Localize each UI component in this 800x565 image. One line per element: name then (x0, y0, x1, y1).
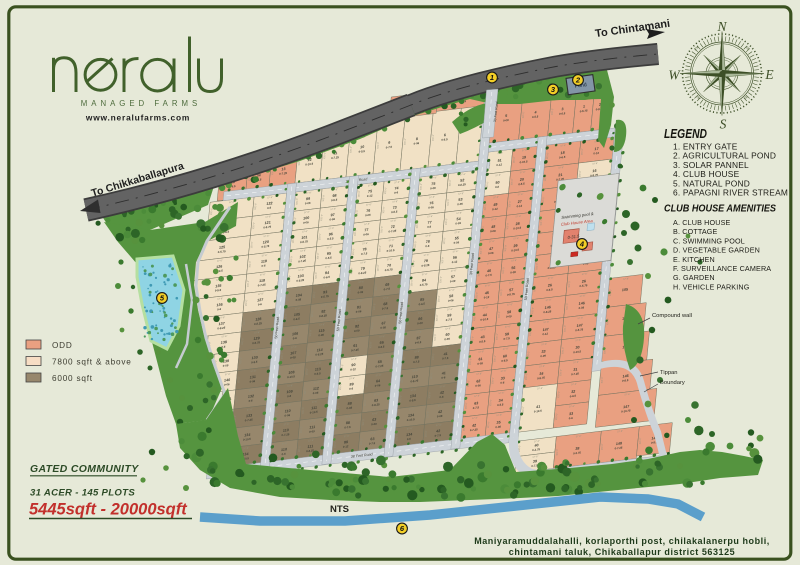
svg-text:0-12: 0-12 (492, 207, 498, 212)
svg-text:0-06: 0-06 (444, 337, 450, 342)
svg-text:S: S (720, 117, 727, 132)
svg-text:0-7.5: 0-7.5 (413, 359, 420, 364)
svg-text:N: N (716, 19, 727, 34)
svg-text:Boundary: Boundary (660, 380, 685, 386)
svg-text:0-06: 0-06 (448, 298, 454, 303)
svg-text:0-06: 0-06 (313, 391, 319, 396)
svg-text:Compound wall: Compound wall (652, 313, 692, 319)
svg-text:2: 2 (575, 76, 581, 85)
svg-text:0-08: 0-08 (510, 270, 516, 275)
svg-text:0-09: 0-09 (506, 314, 512, 319)
svg-text:0-09: 0-09 (357, 290, 363, 295)
svg-text:0-7.5: 0-7.5 (369, 441, 376, 446)
svg-text:0-06: 0-06 (375, 383, 381, 388)
svg-text:0-08: 0-08 (346, 406, 352, 411)
svg-text:LEGEND: LEGEND (664, 127, 707, 141)
svg-text:0-08: 0-08 (490, 229, 496, 234)
svg-text:6. PAPAGNI RIVER STREAM: 6. PAPAGNI RIVER STREAM (673, 188, 788, 198)
svg-text:0-7.5: 0-7.5 (442, 356, 449, 361)
svg-text:0-09: 0-09 (371, 422, 377, 427)
svg-text:0-09: 0-09 (354, 328, 360, 333)
svg-text:0-5.5: 0-5.5 (391, 209, 398, 214)
svg-text:105: 105 (622, 288, 629, 293)
svg-text:1: 1 (490, 73, 494, 82)
svg-text:0-6.5: 0-6.5 (415, 340, 422, 345)
svg-text:0-06: 0-06 (303, 220, 309, 225)
svg-text:0-7.5: 0-7.5 (473, 405, 480, 410)
svg-text:0-12: 0-12 (367, 193, 373, 198)
svg-text:5445sqft - 20000sqft: 5445sqft - 20000sqft (29, 501, 188, 519)
svg-text:G. GARDEN: G. GARDEN (673, 273, 715, 282)
svg-text:0-09: 0-09 (309, 429, 315, 434)
svg-text:0-12: 0-12 (452, 260, 458, 265)
svg-text:0-08: 0-08 (578, 305, 584, 310)
svg-text:0-06: 0-06 (365, 213, 371, 218)
svg-text:0-6.5: 0-6.5 (378, 344, 385, 349)
svg-text:E. KITCHEN: E. KITCHEN (673, 255, 715, 264)
svg-text:0-5.5: 0-5.5 (479, 339, 486, 344)
svg-text:0-06: 0-06 (329, 217, 335, 222)
svg-text:E: E (764, 67, 774, 82)
svg-text:0-06: 0-06 (475, 383, 481, 388)
svg-text:0-08: 0-08 (495, 425, 501, 430)
svg-text:0-7.5: 0-7.5 (382, 306, 389, 311)
svg-text:0-08: 0-08 (437, 414, 443, 419)
svg-text:D. VEGETABLE GARDEN: D. VEGETABLE GARDEN (673, 246, 760, 255)
svg-text:0-06: 0-06 (356, 309, 362, 314)
svg-text:6000 sqft: 6000 sqft (52, 374, 93, 383)
svg-text:0-06: 0-06 (284, 413, 290, 418)
svg-text:0-09: 0-09 (223, 363, 229, 368)
svg-text:B. COTTAGE: B. COTTAGE (673, 227, 718, 236)
svg-text:0-6.5: 0-6.5 (314, 371, 321, 376)
svg-text:www.neralufarms.com: www.neralufarms.com (85, 113, 190, 123)
svg-text:0-08: 0-08 (295, 297, 301, 302)
svg-text:4: 4 (579, 240, 585, 249)
svg-text:Maniyaramuddalahalli, korlapor: Maniyaramuddalahalli, korlaporthi post, … (474, 536, 770, 546)
svg-text:0-09: 0-09 (455, 221, 461, 226)
svg-text:0-06: 0-06 (428, 205, 434, 210)
svg-text:0-12: 0-12 (516, 204, 522, 209)
svg-text:C. SWIMMING POOL: C. SWIMMING POOL (673, 236, 745, 245)
svg-text:0-06: 0-06 (249, 379, 255, 384)
svg-text:chintamani taluk, Chikaballapu: chintamani taluk, Chikaballapur district… (509, 547, 735, 557)
svg-text:7800 sqft & above: 7800 sqft & above (52, 358, 132, 367)
svg-text:0-7.5: 0-7.5 (503, 336, 510, 341)
svg-text:0-6.5: 0-6.5 (570, 394, 577, 399)
svg-text:0-7.5: 0-7.5 (485, 273, 492, 278)
svg-text:A. CLUB HOUSE: A. CLUB HOUSE (673, 218, 731, 227)
svg-text:0-12: 0-12 (593, 151, 599, 156)
svg-text:0-08: 0-08 (380, 325, 386, 330)
svg-text:0-5.5: 0-5.5 (497, 402, 504, 407)
svg-text:0-08: 0-08 (503, 118, 509, 123)
svg-text:0-09: 0-09 (540, 354, 546, 359)
svg-text:0-6.5: 0-6.5 (293, 317, 300, 322)
svg-text:0-5.5: 0-5.5 (327, 236, 334, 241)
svg-text:ODD: ODD (52, 341, 73, 350)
svg-text:0-12: 0-12 (496, 162, 502, 167)
svg-text:0-09: 0-09 (453, 240, 459, 245)
svg-text:0-09: 0-09 (417, 321, 423, 326)
svg-text:CLUB HOUSE AMENITIES: CLUB HOUSE AMENITIES (664, 204, 776, 215)
svg-text:F. SURVEILLANCE CAMERA: F. SURVEILLANCE CAMERA (673, 264, 771, 273)
svg-text:0-7.5: 0-7.5 (434, 433, 441, 438)
svg-text:0-12: 0-12 (542, 332, 548, 337)
svg-text:0-06: 0-06 (363, 232, 369, 237)
svg-text:0-12: 0-12 (343, 444, 349, 449)
svg-text:0-5.5: 0-5.5 (251, 360, 258, 365)
svg-text:0-09: 0-09 (477, 361, 483, 366)
svg-text:0-08: 0-08 (290, 355, 296, 360)
svg-text:0-12: 0-12 (483, 295, 489, 300)
svg-text:0-12: 0-12 (350, 367, 356, 372)
svg-text:0-06: 0-06 (318, 333, 324, 338)
svg-text:31 ACER - 145 PLOTS: 31 ACER - 145 PLOTS (30, 488, 135, 499)
svg-text:0-06: 0-06 (305, 201, 311, 206)
svg-text:0-06: 0-06 (457, 202, 463, 207)
svg-text:NTS: NTS (330, 504, 349, 515)
svg-text:0-08: 0-08 (430, 186, 436, 191)
svg-text:0-09: 0-09 (450, 279, 456, 284)
svg-text:0-6.5: 0-6.5 (418, 302, 425, 307)
svg-text:0-06: 0-06 (224, 382, 230, 387)
svg-text:W: W (668, 68, 681, 83)
svg-text:Tippan: Tippan (660, 370, 678, 376)
svg-text:H. VEHICLE PARKING: H. VEHICLE PARKING (673, 282, 750, 291)
svg-text:GATED COMMUNITY: GATED COMMUNITY (30, 464, 139, 475)
svg-text:MANAGED FARMS: MANAGED FARMS (81, 99, 201, 108)
svg-text:0-06: 0-06 (488, 251, 494, 256)
svg-text:0-06: 0-06 (413, 141, 419, 146)
